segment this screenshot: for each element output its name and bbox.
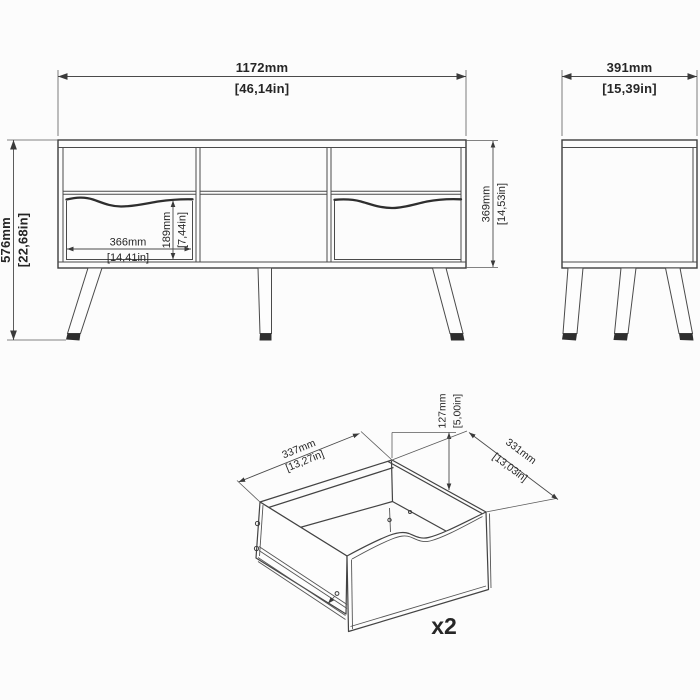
furniture-technical-drawing: 1172mm [46,14in] 576mm [22,68in] 366mm […: [0, 0, 700, 700]
front-height-inch-label: [22,68in]: [16, 213, 31, 268]
side-view: 391mm [15,39in]: [562, 60, 697, 341]
front-left-drawer: [67, 198, 193, 260]
front-middle-leg: [258, 268, 272, 334]
side-depth-inch-label: [15,39in]: [602, 81, 657, 96]
back-panel-hole: [409, 511, 412, 514]
iso-height-inch-label: [5,00in]: [452, 394, 464, 429]
side-front-leg: [563, 268, 583, 334]
drawer-height-mm-label: 189mm: [161, 212, 173, 249]
front-middle-foot: [260, 334, 272, 341]
technical-drawing-page: 1172mm [46,14in] 576mm [22,68in] 366mm […: [0, 0, 700, 700]
front-right-leg: [433, 268, 464, 334]
drawer-left-side: [254, 502, 347, 620]
front-left-leg: [68, 268, 103, 334]
side-back-foot: [679, 334, 694, 341]
side-depth-mm-label: 391mm: [607, 60, 653, 75]
dim-iso-height: 127mm [5,00in]: [392, 393, 464, 490]
dim-front-height: 576mm [22,68in]: [0, 140, 66, 340]
quantity-label: x2: [431, 613, 457, 639]
front-width-mm-label: 1172mm: [236, 60, 289, 75]
front-view: 1172mm [46,14in] 576mm [22,68in] 366mm […: [0, 60, 508, 341]
side-front-foot: [562, 334, 577, 341]
dim-iso-depth: 331mm [13,03in]: [392, 431, 558, 512]
front-height-mm-label: 576mm: [0, 217, 13, 263]
drawer-front-panel: [347, 512, 491, 632]
right-drawer-wave-edge: [335, 199, 462, 208]
dim-interior-height: 369mm [14,53in]: [466, 141, 508, 268]
front-legs: [66, 268, 465, 341]
front-right-foot: [450, 334, 465, 341]
front-width-inch-label: [46,14in]: [235, 81, 290, 96]
side-carcass-outline: [562, 140, 697, 268]
interior-height-inch-label: [14,53in]: [496, 183, 508, 225]
dim-front-width: 1172mm [46,14in]: [58, 60, 466, 136]
front-right-drawer: [335, 199, 462, 259]
back-panel-hole: [388, 518, 391, 521]
drawer-width-inch-label: [14,41in]: [107, 252, 149, 264]
left-drawer-wave-edge: [67, 198, 193, 207]
side-back-leg: [666, 268, 693, 334]
iso-height-mm-label: 127mm: [437, 393, 449, 428]
side-middle-foot: [614, 334, 629, 341]
side-legs: [562, 268, 694, 341]
dim-drawer-height: 189mm [7,44in]: [161, 201, 189, 260]
dim-side-depth: 391mm [15,39in]: [562, 60, 697, 136]
drawer-width-mm-label: 366mm: [110, 237, 147, 249]
front-left-foot: [66, 334, 81, 341]
drawer-detail-view: 337mm [13,27in] 127mm [5,00in] 331mm [13…: [237, 393, 558, 639]
side-middle-leg: [615, 268, 637, 334]
side-carcass-panels: [562, 148, 697, 263]
interior-height-mm-label: 369mm: [481, 186, 493, 223]
drawer-height-inch-label: [7,44in]: [177, 212, 189, 248]
dim-iso-width: 337mm [13,27in]: [237, 432, 392, 503]
